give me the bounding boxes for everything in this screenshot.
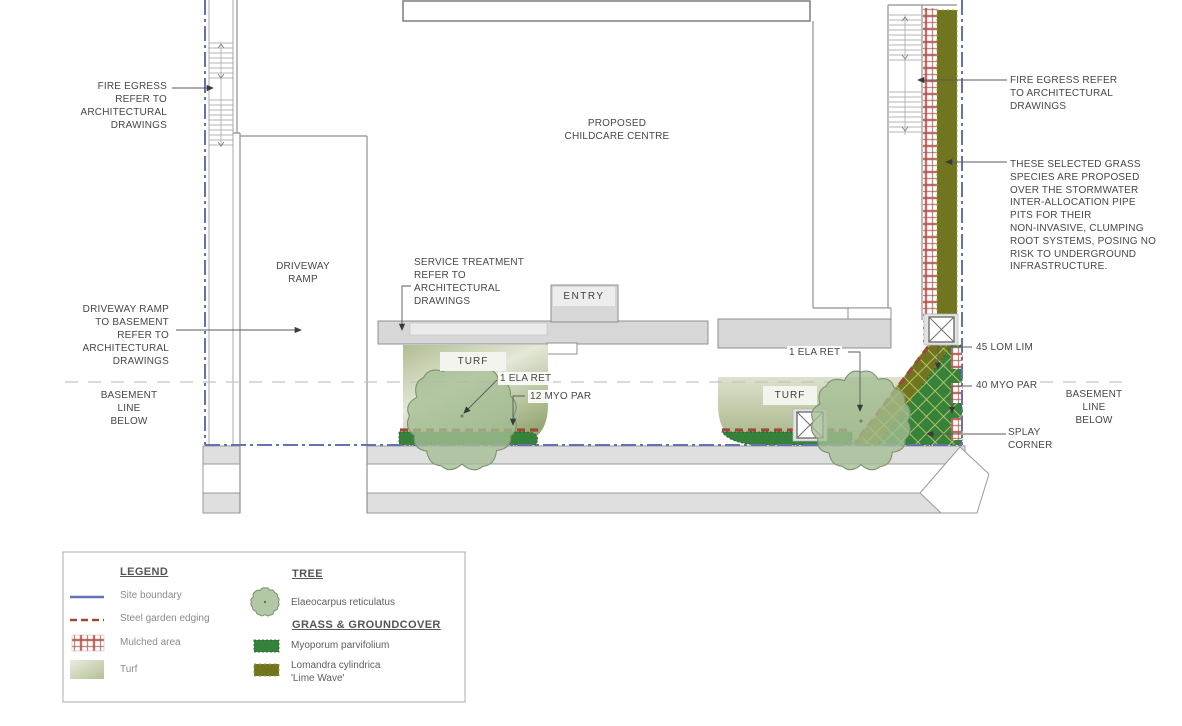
legend-tree-heading: TREE	[292, 568, 323, 580]
service-strip	[410, 323, 547, 335]
fire-stair-right	[889, 15, 921, 135]
tag-myoporum-right: 40 MYO PAR	[974, 379, 1039, 392]
tag-tree-right: 1 ELA RET	[787, 346, 842, 359]
fire-stair-left	[209, 43, 233, 147]
tag-myoporum-left: 12 MYO PAR	[528, 390, 593, 403]
planting-strip-right	[923, 8, 957, 343]
note-grass-species: THESE SELECTED GRASS SPECIES ARE PROPOSE…	[1010, 159, 1170, 274]
turf-label-left: TURF	[440, 352, 506, 371]
note-service-treatment: SERVICE TREATMENT REFER TO ARCHITECTURAL…	[414, 256, 542, 308]
legend-tree-species: Elaeocarpus reticulatus	[291, 597, 395, 610]
legend-myoporum-swatch	[254, 640, 279, 652]
site-plan-sheet: FIRE EGRESS REFER TO ARCHITECTURAL DRAWI…	[0, 0, 1182, 726]
tag-tree-left: 1 ELA RET	[498, 372, 553, 385]
legend-item-mulched-area: Mulched area	[120, 637, 181, 648]
legend-grass-myoporum: Myoporum parvifolium	[291, 640, 389, 653]
legend-lomandra-swatch	[254, 664, 279, 676]
legend-grass-heading: GRASS & GROUNDCOVER	[292, 619, 441, 631]
legend-item-turf: Turf	[120, 664, 137, 675]
legend-turf-swatch	[70, 660, 104, 679]
legend-item-steel-edging: Steel garden edging	[120, 613, 210, 624]
legend-title: LEGEND	[120, 566, 168, 578]
note-fire-egress-left: FIRE EGRESS REFER TO ARCHITECTURAL DRAWI…	[55, 80, 167, 132]
turf-label-right: TURF	[763, 386, 817, 405]
note-driveway-ramp: DRIVEWAY RAMP TO BASEMENT REFER TO ARCHI…	[56, 303, 169, 368]
note-splay-corner: SPLAY CORNER	[1008, 426, 1078, 452]
entry-label: ENTRY	[553, 287, 615, 306]
driveway-ramp-label: DRIVEWAY RAMP	[258, 260, 348, 286]
building-title: PROPOSED CHILDCARE CENTRE	[537, 117, 697, 143]
legend-grass-lomandra: Lomandra cylindrica 'Lime Wave'	[291, 660, 381, 685]
mulched-area	[951, 347, 962, 369]
note-basement-line-right: BASEMENT LINE BELOW	[1058, 388, 1130, 427]
mulched-area	[923, 8, 937, 343]
tag-lomandra-count: 45 LOM LIM	[974, 341, 1035, 354]
lomandra-band	[937, 10, 957, 343]
legend-mulch-swatch	[72, 635, 104, 651]
mulched-area	[951, 418, 962, 440]
note-basement-line-left: BASEMENT LINE BELOW	[83, 389, 175, 428]
note-fire-egress-right: FIRE EGRESS REFER TO ARCHITECTURAL DRAWI…	[1010, 74, 1135, 113]
legend-item-site-boundary: Site boundary	[120, 590, 182, 601]
pit-symbol	[929, 317, 954, 342]
